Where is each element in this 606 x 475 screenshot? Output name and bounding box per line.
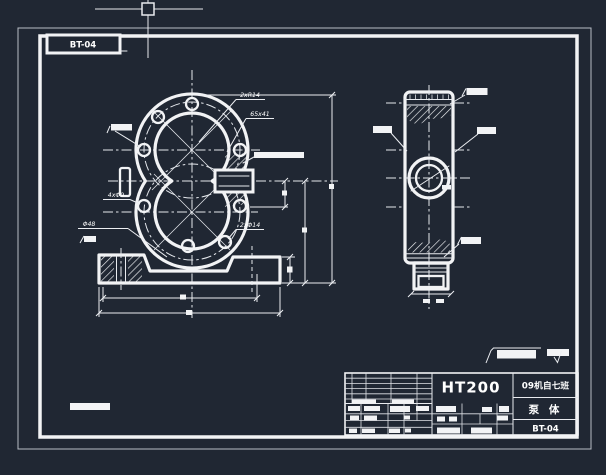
dim-text-bar bbox=[302, 228, 307, 233]
dim-text-bar bbox=[442, 185, 451, 190]
label-bottom-holes: 2xΦ14 bbox=[240, 222, 260, 229]
side-port-section[interactable] bbox=[215, 152, 304, 207]
roughness-symbol bbox=[107, 124, 141, 147]
port-callout-text-bar bbox=[254, 152, 304, 158]
roughness-symbol bbox=[455, 127, 496, 152]
part-name-cell[interactable]: 泵 体 bbox=[529, 403, 563, 416]
drawing-number-cell[interactable]: BT-04 bbox=[532, 425, 558, 435]
hatch-region bbox=[128, 256, 142, 282]
roughness-symbol bbox=[373, 126, 407, 151]
label-side-holes: 4xΦ9 bbox=[108, 192, 124, 199]
material-cell[interactable]: HT200 bbox=[441, 379, 500, 397]
titleblock-text-bars bbox=[436, 406, 509, 434]
hatch-region bbox=[101, 256, 114, 282]
roughness-symbol bbox=[486, 348, 541, 363]
note-text-bar bbox=[70, 403, 110, 410]
title-block[interactable]: HT200 09机自七班 泵 体 BT-04 bbox=[345, 373, 578, 435]
dim-text-bar bbox=[423, 299, 430, 303]
dim-text-bar bbox=[282, 191, 287, 196]
dim-text-bar bbox=[186, 310, 192, 315]
drawing-canvas[interactable]: BT-04 bbox=[0, 0, 606, 475]
dim-text-bar bbox=[287, 267, 293, 273]
dim-text-bar bbox=[436, 299, 444, 303]
bt04-tab[interactable]: BT-04 bbox=[47, 35, 127, 53]
bolt-hole bbox=[152, 111, 164, 123]
side-view[interactable] bbox=[373, 85, 496, 309]
tab-label: BT-04 bbox=[70, 41, 96, 51]
roughness-symbol bbox=[547, 349, 569, 363]
port-bore bbox=[215, 170, 253, 192]
class-name-cell[interactable]: 09机自七班 bbox=[522, 380, 570, 392]
hatch-region bbox=[225, 192, 248, 207]
cad-viewport[interactable]: BT-04 bbox=[0, 0, 606, 475]
label-boss-diameter: Φ48 bbox=[83, 221, 96, 228]
lower-extension[interactable] bbox=[414, 263, 448, 289]
surface-finish-note bbox=[486, 348, 569, 363]
roughness-symbol bbox=[450, 88, 488, 104]
dim-text-bar bbox=[329, 184, 334, 189]
label-port-note: 65x41 bbox=[250, 111, 269, 118]
bottom-dimension bbox=[408, 291, 454, 303]
front-view[interactable]: 2xR14 65x41 4xΦ9 Φ48 2xΦ14 bbox=[78, 70, 338, 318]
label-top-holes: 2xR14 bbox=[240, 92, 260, 99]
pickbox bbox=[142, 3, 154, 15]
roughness-flag bbox=[80, 236, 84, 243]
hatch-region bbox=[225, 153, 248, 170]
dim-text-bar bbox=[180, 295, 186, 300]
